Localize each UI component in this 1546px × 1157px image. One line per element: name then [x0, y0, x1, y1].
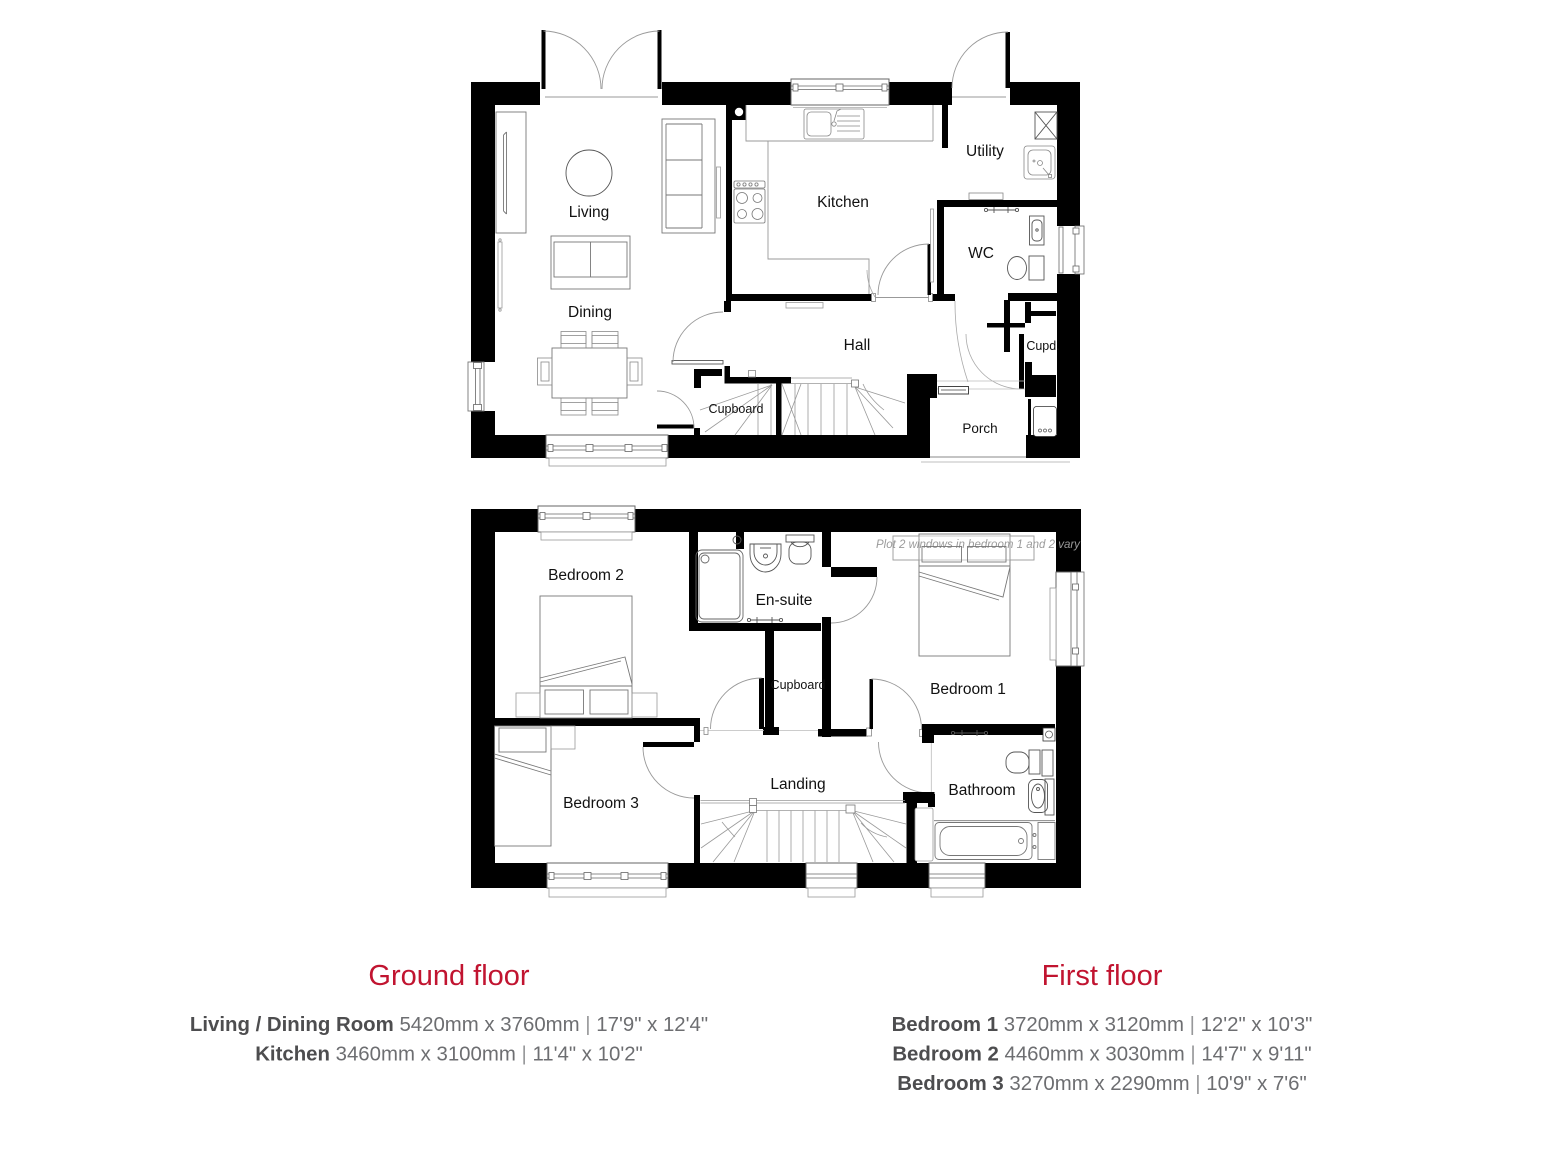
- svg-text:Utility: Utility: [966, 143, 1004, 160]
- svg-text:First floor: First floor: [1042, 960, 1163, 992]
- svg-text:Cupboard: Cupboard: [771, 678, 826, 692]
- svg-text:En-suite: En-suite: [756, 592, 813, 609]
- svg-text:Bedroom 3: Bedroom 3: [563, 795, 639, 812]
- svg-text:Living / Dining Room 5420mm x: Living / Dining Room 5420mm x 3760mm | 1…: [190, 1014, 708, 1036]
- svg-text:Bedroom 2 4460mm x 3030mm |: Bedroom 2 4460mm x 3030mm | 14'7" x 9'11…: [892, 1044, 1311, 1066]
- svg-text:Porch: Porch: [962, 421, 997, 436]
- svg-text:Bedroom 1: Bedroom 1: [930, 681, 1006, 698]
- svg-text:Bedroom 2: Bedroom 2: [548, 567, 624, 584]
- svg-text:Dining: Dining: [568, 304, 612, 321]
- svg-text:Bedroom 1 3720mm x 3120mm |: Bedroom 1 3720mm x 3120mm | 12'2" x 10'3…: [892, 1014, 1313, 1036]
- svg-text:Bathroom: Bathroom: [948, 782, 1015, 799]
- svg-text:Bedroom 3 3270mm x 2290mm |: Bedroom 3 3270mm x 2290mm | 10'9" x 7'6": [897, 1073, 1307, 1095]
- svg-text:Plot 2 windows in bedroom 1 an: Plot 2 windows in bedroom 1 and 2 vary: [876, 539, 1081, 551]
- svg-text:WC: WC: [968, 245, 994, 262]
- svg-text:Cupboard: Cupboard: [709, 402, 764, 416]
- svg-text:Hall: Hall: [844, 337, 871, 354]
- svg-text:Cupd.: Cupd.: [1026, 339, 1059, 353]
- svg-text:Kitchen: Kitchen: [817, 194, 869, 211]
- svg-text:Living: Living: [569, 204, 610, 221]
- svg-text:Landing: Landing: [770, 776, 825, 793]
- svg-text:Ground floor: Ground floor: [368, 960, 530, 992]
- svg-text:Kitchen 3460mm x 3100mm | 11: Kitchen 3460mm x 3100mm | 11'4" x 10'2": [255, 1044, 643, 1066]
